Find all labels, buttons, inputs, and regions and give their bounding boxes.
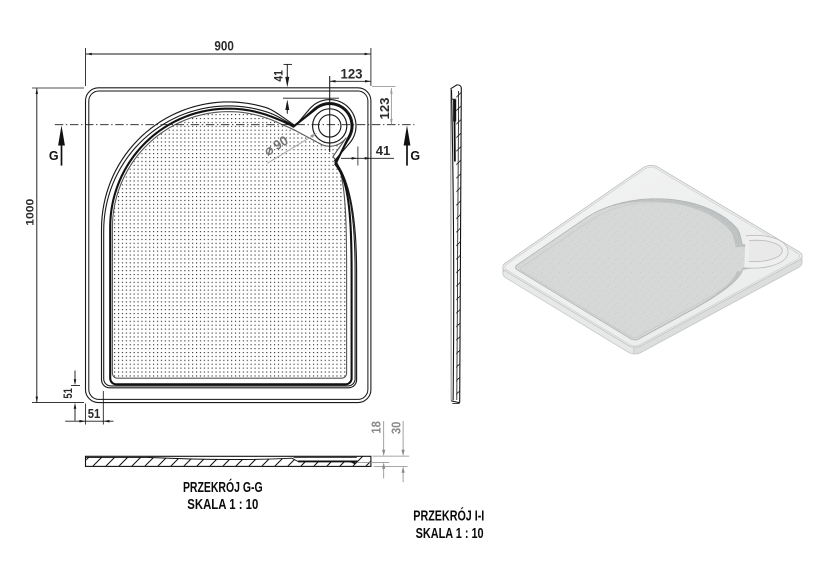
svg-text:30: 30 <box>389 422 404 435</box>
svg-text:G: G <box>410 149 420 163</box>
svg-text:900: 900 <box>214 38 234 54</box>
svg-text:51: 51 <box>88 406 101 421</box>
svg-text:41: 41 <box>376 143 391 158</box>
svg-text:18: 18 <box>369 421 384 434</box>
svg-text:SKALA 1 : 10: SKALA 1 : 10 <box>416 526 484 542</box>
svg-text:41: 41 <box>274 70 286 82</box>
svg-text:SKALA 1 : 10: SKALA 1 : 10 <box>187 497 258 513</box>
svg-text:PRZEKRÓJ G-G: PRZEKRÓJ G-G <box>183 478 263 496</box>
svg-text:G: G <box>49 149 59 163</box>
svg-text:PRZEKRÓJ I-I: PRZEKRÓJ I-I <box>413 507 484 525</box>
svg-text:1000: 1000 <box>25 199 37 226</box>
svg-text:123: 123 <box>341 66 363 81</box>
svg-text:123: 123 <box>377 98 392 120</box>
svg-text:51: 51 <box>63 388 75 399</box>
